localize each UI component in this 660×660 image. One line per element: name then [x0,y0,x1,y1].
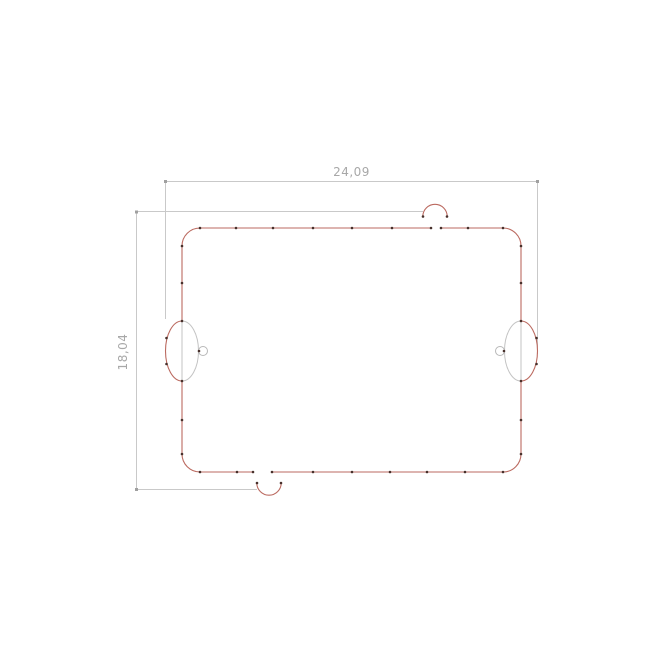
path-node-mark [351,471,354,474]
path-node-mark [252,471,255,474]
path-node-mark [165,337,168,340]
path-node-mark [199,227,202,230]
path-node-mark [520,419,523,422]
path-node-mark [351,227,354,230]
path-node-mark [535,337,538,340]
path-node-mark [181,380,184,383]
path-node-mark [430,227,433,230]
cut-outline[interactable] [166,204,538,495]
dim-endpoint [536,180,539,183]
top-notch-arc[interactable] [423,204,447,216]
path-node-mark [312,227,315,230]
path-node-mark [236,471,239,474]
left-grommet[interactable] [182,321,208,381]
path-node-mark [272,227,275,230]
cad-drawing: 24,09 18,04 [0,0,660,660]
height-dimension-label[interactable]: 18,04 [116,334,130,371]
width-dimension[interactable] [164,180,539,354]
dim-endpoint [135,211,138,214]
height-dimension[interactable] [135,211,423,492]
path-node-mark [165,363,168,366]
path-node-mark [181,282,184,285]
path-node-mark [312,471,315,474]
path-node-mark [426,471,429,474]
right-grommet-inner-arc [505,321,522,381]
path-node-mark [520,320,523,323]
path-node-mark [181,320,184,323]
path-node-mark [181,419,184,422]
path-node-mark [422,215,425,218]
path-node-mark [520,282,523,285]
path-node-mark [271,471,274,474]
dim-endpoint [135,488,138,491]
path-node-mark [503,350,506,353]
path-node-mark [502,227,505,230]
path-node-mark [391,227,394,230]
path-node-mark [389,471,392,474]
path-node-mark [181,453,184,456]
path-node-mark [467,227,470,230]
path-node-mark [256,482,259,485]
path-node-mark [280,482,283,485]
path-node-mark [520,453,523,456]
outline-path[interactable] [166,228,538,472]
path-node-mark [520,380,523,383]
right-grommet[interactable] [496,321,522,381]
node-marks [165,215,538,484]
path-node-mark [535,363,538,366]
path-node-mark [198,350,201,353]
path-node-mark [446,215,449,218]
bottom-notch-arc[interactable] [257,483,281,495]
dim-endpoint [164,180,167,183]
cad-drawing-canvas: 24,09 18,04 [0,0,660,660]
path-node-mark [199,471,202,474]
path-node-mark [440,227,443,230]
path-node-mark [502,471,505,474]
path-node-mark [235,227,238,230]
width-dimension-label[interactable]: 24,09 [333,165,370,179]
path-node-mark [520,245,523,248]
left-grommet-inner-arc [182,321,199,381]
path-node-mark [181,245,184,248]
path-node-mark [464,471,467,474]
